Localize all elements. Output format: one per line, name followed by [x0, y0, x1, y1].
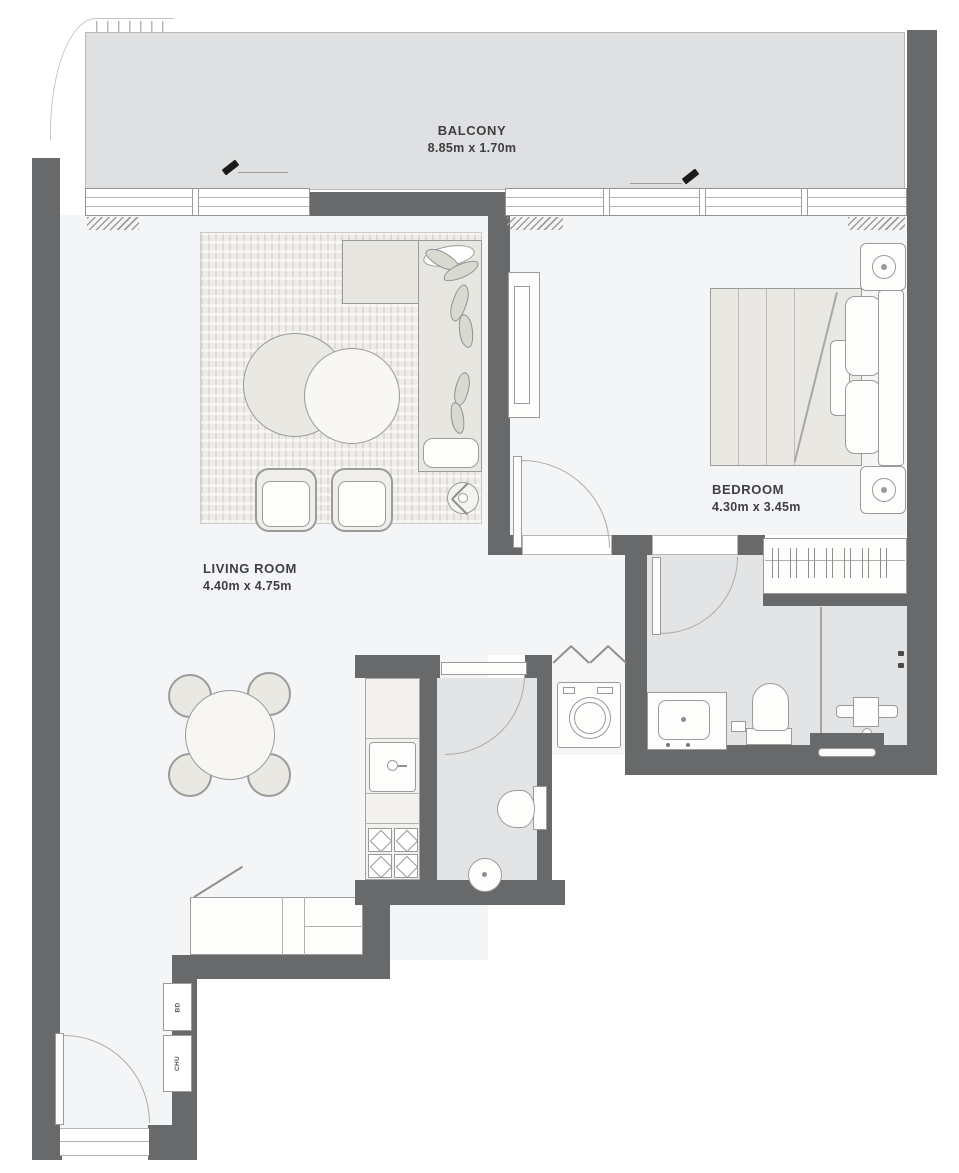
wall-hatch	[87, 217, 139, 230]
wall-left	[32, 158, 60, 1160]
entry-door-leaf	[55, 1033, 64, 1125]
bed-fold-line	[738, 289, 739, 465]
hallway-floor	[488, 545, 625, 655]
nightstand-top-lamp-dot	[881, 264, 887, 270]
shower-drain-channel	[818, 748, 876, 757]
console-shelf-line	[304, 926, 363, 927]
sofa-end-cushion	[423, 438, 479, 468]
ensuite-toilet-bowl	[752, 683, 789, 731]
bed-headboard	[878, 290, 904, 466]
ensuite-toilet-paper-holder	[731, 721, 746, 732]
stove-burner	[394, 854, 418, 878]
nightstand-bottom-lamp-dot	[881, 487, 887, 493]
balcony-label: BALCONY 8.85m x 1.70m	[372, 122, 572, 158]
clothes-hanger	[808, 548, 815, 578]
wall-living-bedroom	[488, 215, 510, 537]
armchair-right-seat	[338, 481, 386, 527]
washer-control	[597, 687, 613, 694]
wall-ensuite-left	[625, 552, 647, 775]
wall-bedroom-south-c	[738, 535, 765, 555]
armchair-left-seat	[262, 481, 310, 527]
dining-table	[185, 690, 275, 780]
stove-burner	[368, 828, 392, 852]
wall-kitchen-powder	[420, 678, 437, 880]
living-room-dims: 4.40m x 4.75m	[203, 578, 363, 596]
window-mullion	[192, 189, 199, 215]
ensuite-basin-drain	[681, 717, 686, 722]
wall-entry-bottom-right	[148, 1125, 197, 1160]
counter-line	[365, 738, 420, 739]
clothes-hanger	[844, 548, 851, 578]
powder-toilet-tank	[533, 786, 547, 830]
powder-basin-drain	[482, 872, 487, 877]
balcony-drain-line-right	[630, 183, 682, 184]
floor-plan: BD CHU BALCONY 8.85m x 1.70m LIVING ROOM…	[0, 0, 959, 1173]
shower-partition	[820, 607, 822, 745]
bedroom-dims: 4.30m x 3.45m	[712, 499, 872, 517]
kitchen-faucet	[387, 760, 398, 771]
ensuite-door-threshold	[652, 535, 738, 555]
side-table-center	[458, 493, 468, 503]
stove-burner	[368, 854, 392, 878]
clothes-hanger	[826, 548, 833, 578]
balcony-floor	[85, 32, 905, 190]
bedroom-label: BEDROOM 4.30m x 3.45m	[712, 481, 872, 517]
clothes-hanger	[772, 548, 779, 578]
shaft-bottom: CHU	[163, 1035, 192, 1092]
ensuite-faucet-dot	[666, 743, 670, 747]
facade-top-line	[94, 18, 174, 19]
wall-right	[907, 30, 937, 775]
living-room-label: LIVING ROOM 4.40m x 4.75m	[203, 560, 363, 596]
balcony-drain-line-left	[238, 172, 288, 173]
window-mullion	[699, 189, 706, 215]
bedroom-name: BEDROOM	[712, 481, 872, 499]
wall-hatch	[507, 217, 563, 230]
wall-under-wardrobe	[763, 592, 907, 606]
balcony-name: BALCONY	[372, 122, 572, 140]
bed-pillow-top	[845, 296, 881, 376]
ensuite-faucet-dot	[686, 743, 690, 747]
counter-line	[365, 823, 420, 824]
shaft-top-label: BD	[174, 1002, 181, 1012]
living-room-name: LIVING ROOM	[203, 560, 363, 578]
bed-fold-line	[794, 289, 795, 465]
shower-mixer-dot	[898, 651, 904, 656]
entry-door-threshold	[60, 1128, 149, 1156]
washer-control	[563, 687, 575, 694]
bedroom-sliding-window	[505, 188, 907, 216]
wall-balcony-mid	[310, 192, 510, 216]
bed-pillow-bottom	[845, 380, 881, 454]
shaft-bottom-label: CHU	[174, 1056, 181, 1071]
bedroom-dresser-inner	[514, 286, 530, 404]
coffee-table-small	[304, 348, 400, 444]
wall-entry-bottom-left	[32, 1132, 62, 1160]
wall-kitchen-top	[355, 655, 440, 678]
balcony-dims: 8.85m x 1.70m	[372, 140, 572, 158]
console-divider	[282, 897, 283, 955]
counter-line	[365, 793, 420, 794]
shower-mixer-dot	[898, 663, 904, 668]
shower-threshold	[810, 733, 884, 747]
washing-machine-drum-inner	[574, 702, 606, 734]
window-mullion	[801, 189, 808, 215]
powder-door-leaf	[441, 662, 527, 675]
clothes-hanger	[790, 548, 797, 578]
wall-hatch	[848, 217, 905, 230]
wall-powder-bottom	[355, 880, 565, 905]
bed-fold-line	[766, 289, 767, 465]
clothes-hanger	[862, 548, 869, 578]
stove-burner	[394, 828, 418, 852]
window-mullion	[603, 189, 610, 215]
bedroom-door-leaf	[513, 456, 522, 548]
kitchen-faucet-spout	[398, 765, 407, 767]
ensuite-door-leaf	[652, 557, 661, 635]
shaft-top: BD	[163, 983, 192, 1031]
powder-toilet-bowl	[497, 790, 535, 828]
entry-threshold-line	[60, 1141, 149, 1142]
shower-seat-box	[853, 697, 879, 727]
living-room-sliding-window	[85, 188, 310, 216]
wall-console-back	[172, 955, 390, 979]
clothes-hanger	[880, 548, 887, 578]
